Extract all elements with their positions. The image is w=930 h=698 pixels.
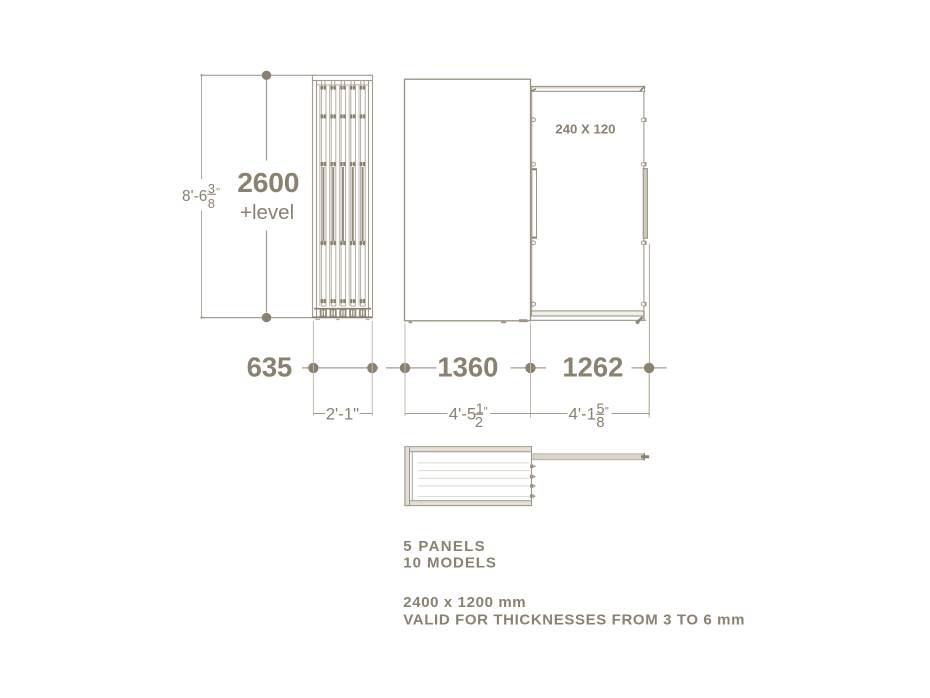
svg-text:2'-1": 2'-1"	[326, 405, 359, 424]
svg-text:3: 3	[208, 181, 215, 196]
svg-text:2600: 2600	[237, 166, 299, 198]
svg-text:8: 8	[596, 415, 604, 431]
svg-text:635: 635	[247, 351, 293, 382]
svg-text:2: 2	[475, 415, 483, 431]
svg-text:4'-1: 4'-1	[569, 405, 596, 424]
svg-text:8'-6: 8'-6	[182, 188, 207, 205]
svg-text:10 MODELS: 10 MODELS	[403, 554, 497, 571]
svg-text:+level: +level	[240, 201, 294, 224]
svg-text:1262: 1262	[562, 351, 623, 382]
svg-text:2400 x 1200 mm: 2400 x 1200 mm	[403, 594, 526, 611]
svg-text:4'-5: 4'-5	[449, 405, 476, 424]
svg-text:": "	[216, 186, 220, 198]
svg-text:240 X 120: 240 X 120	[555, 121, 615, 136]
svg-text:VALID FOR THICKNESSES FROM 3 T: VALID FOR THICKNESSES FROM 3 TO 6 mm	[403, 612, 745, 629]
svg-text:": "	[605, 406, 609, 418]
svg-text:": "	[484, 406, 488, 418]
svg-text:5 PANELS: 5 PANELS	[403, 538, 486, 555]
svg-text:8: 8	[208, 196, 215, 211]
svg-text:1360: 1360	[437, 351, 498, 382]
